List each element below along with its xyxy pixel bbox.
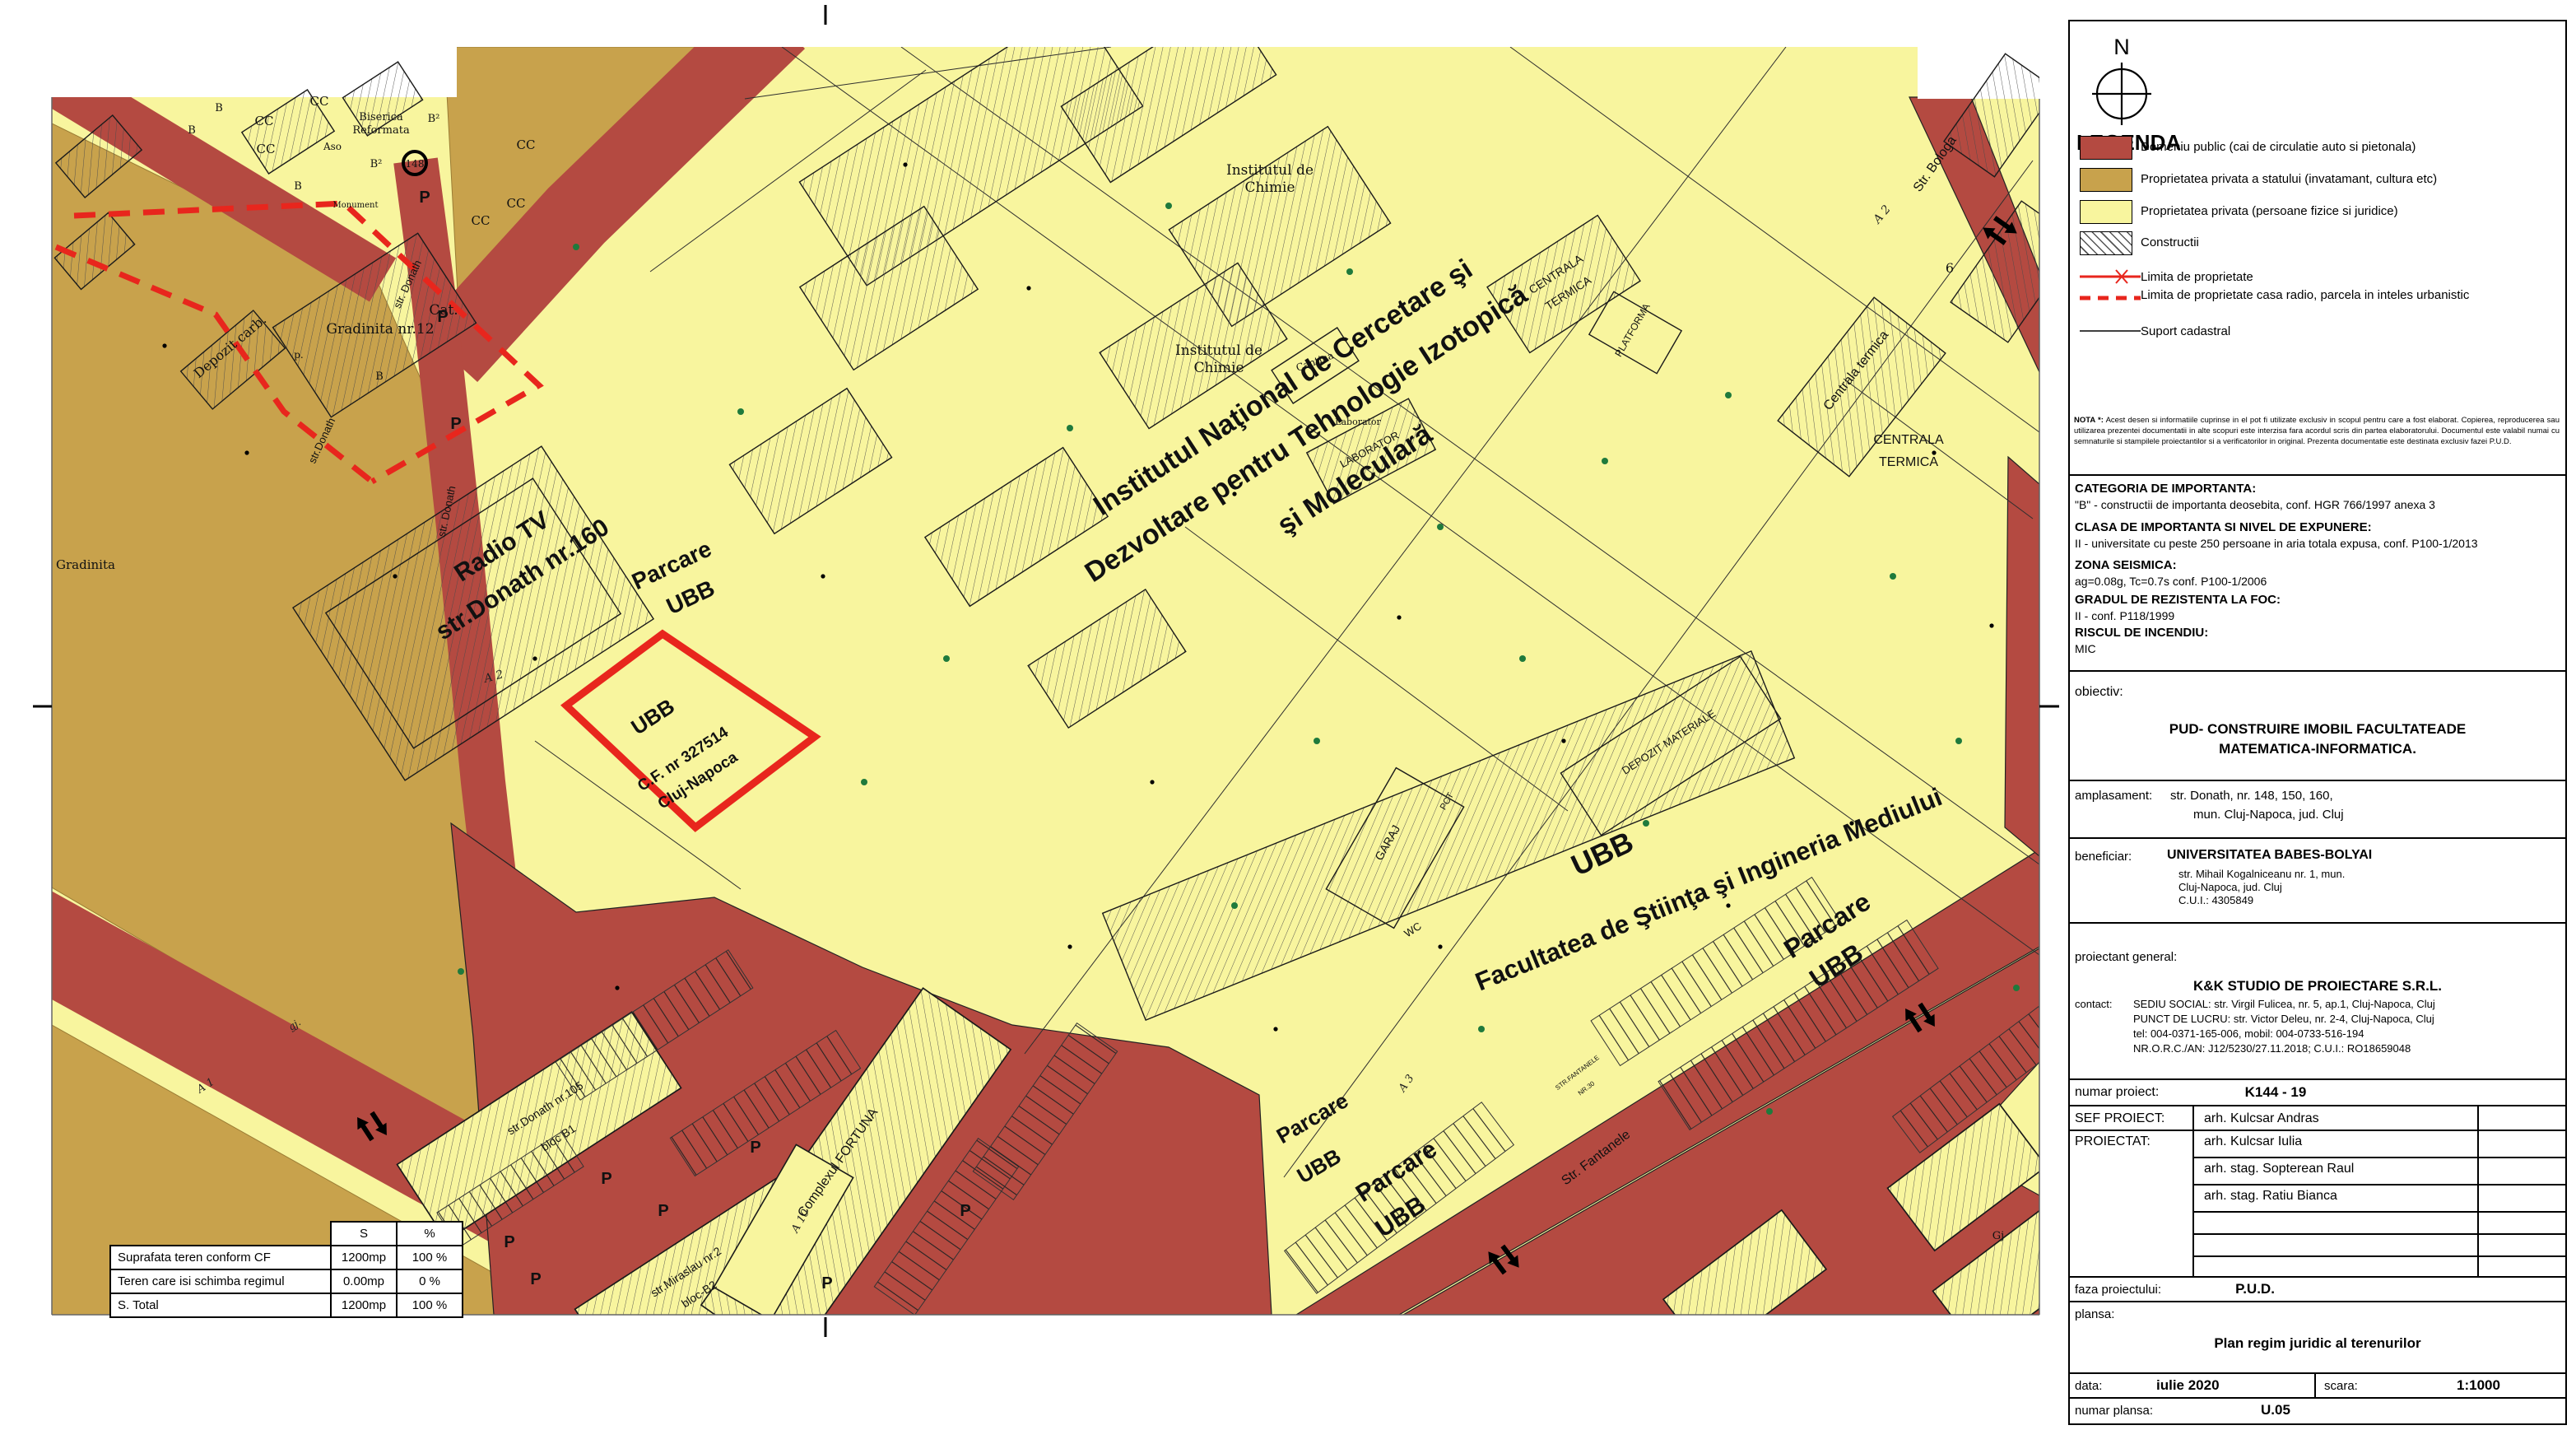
survey-dot xyxy=(1989,623,1993,627)
legend-swatch-constructii xyxy=(2080,231,2132,255)
tree-dot xyxy=(1165,203,1172,209)
info-heading: RISCUL DE INCENDIU: xyxy=(2075,626,2208,640)
tree-dot xyxy=(1766,1108,1773,1115)
map-label: Monument xyxy=(333,201,379,210)
legend-item: Proprietatea privata (persoane fizice si… xyxy=(2141,204,2398,218)
data-value: iulie 2020 xyxy=(2156,1377,2220,1394)
tree-dot xyxy=(573,244,579,250)
tree-dot xyxy=(1955,738,1962,744)
parking-marker: P xyxy=(530,1270,541,1288)
survey-dot xyxy=(1561,738,1565,743)
contact-label: contact: xyxy=(2075,998,2113,1010)
map-label: CC xyxy=(517,137,536,152)
survey-dot xyxy=(1026,286,1030,290)
table-row: S. Total 1200mp 100 % xyxy=(110,1293,463,1317)
info-heading: GRADUL DE REZISTENTA LA FOC: xyxy=(2075,593,2281,607)
beneficiar-name: UNIVERSITATEA BABES-BOLYAI xyxy=(2167,848,2372,863)
map-label: Chimie xyxy=(1193,360,1244,376)
info-body: "B" - constructii de importanta deosebit… xyxy=(2075,498,2435,511)
beneficiar-addr: Cluj-Napoca, jud. Cluj xyxy=(2178,881,2282,893)
info-body: ag=0.08g, Tc=0.7s conf. P100-1/2006 xyxy=(2075,575,2267,588)
proiectant-company: K&K STUDIO DE PROIECTARE S.R.L. xyxy=(2070,978,2565,994)
tree-dot xyxy=(458,968,464,975)
table-row: Suprafata teren conform CF 1200mp 100 % xyxy=(110,1246,463,1269)
survey-dot xyxy=(1150,780,1154,784)
numar-plansa-value: U.05 xyxy=(2193,1402,2358,1418)
parking-marker: P xyxy=(658,1202,668,1220)
parking-marker: P xyxy=(960,1202,970,1220)
faza-value: P.U.D. xyxy=(2152,1281,2358,1297)
beneficiar-cui: C.U.I.: 4305849 xyxy=(2178,894,2253,906)
parking-marker: P xyxy=(821,1274,832,1293)
scara-label: scara: xyxy=(2324,1379,2358,1393)
contact-line: SEDIU SOCIAL: str. Virgil Fulicea, nr. 5… xyxy=(2133,998,2435,1010)
survey-dot xyxy=(1438,944,1442,948)
table-row: Teren care isi schimba regimul 0.00mp 0 … xyxy=(110,1269,463,1293)
map-label: 6 xyxy=(1946,260,1954,276)
contact-line: NR.O.R.C./AN: J12/5230/27.11.2018; C.U.I… xyxy=(2133,1042,2411,1055)
obiectiv-title: PUD- CONSTRUIRE IMOBIL FACULTATEADE xyxy=(2070,721,2565,738)
tree-dot xyxy=(1067,425,1073,431)
legend-swatch-state xyxy=(2080,168,2132,192)
numar-plansa-label: numar plansa: xyxy=(2075,1404,2153,1418)
map-label: Chimie xyxy=(1244,179,1295,196)
map-label: Institutul de xyxy=(1226,162,1314,179)
survey-dot xyxy=(244,450,249,454)
map-label: Gj xyxy=(1992,1230,2004,1242)
amplasament-line1: str. Donath, nr. 148, 150, 160, xyxy=(2170,789,2333,803)
tree-dot xyxy=(737,408,744,415)
scara-value: 1:1000 xyxy=(2457,1377,2500,1394)
map-label: B xyxy=(188,124,196,137)
row-label: S. Total xyxy=(110,1293,331,1317)
proiectant-label: proiectant general: xyxy=(2075,950,2177,964)
proiectat-label: PROIECTAT: xyxy=(2075,1134,2151,1149)
map-label: CENTRALA xyxy=(1873,433,1944,447)
map-label: B² xyxy=(428,113,440,125)
row-s: 0.00mp xyxy=(331,1269,397,1293)
beneficiar-label: beneficiar: xyxy=(2075,850,2132,864)
parking-marker: P xyxy=(437,308,448,326)
proiectat-name: arh. Kulcsar Iulia xyxy=(2204,1134,2302,1149)
parking-marker: P xyxy=(601,1170,611,1188)
map-label: CC xyxy=(472,213,491,228)
info-body: II - universitate cu peste 250 persoane … xyxy=(2075,537,2478,550)
area-table-header-pct: % xyxy=(397,1222,463,1246)
map-label: 148 xyxy=(406,158,425,170)
parking-marker: P xyxy=(750,1139,760,1157)
nota-text: Acest desen si informatiile cuprinse in … xyxy=(2074,416,2560,446)
map-label: Laborator xyxy=(1335,417,1381,427)
map-label: TERMICA xyxy=(1879,455,1938,469)
legend-swatch-public xyxy=(2080,136,2132,160)
map-label: B xyxy=(375,370,384,383)
tree-dot xyxy=(1231,902,1238,909)
survey-dot xyxy=(1726,903,1730,907)
legend-item: Limita de proprietate xyxy=(2141,270,2253,284)
tree-dot xyxy=(943,655,950,662)
tree-dot xyxy=(861,779,867,785)
legend-item: Domeniu public (cai de circulatie auto s… xyxy=(2141,140,2416,154)
legend-item: Suport cadastral xyxy=(2141,324,2230,338)
map-label: p. xyxy=(294,349,304,361)
map-label: B xyxy=(215,102,223,114)
nota-label: NOTA *: xyxy=(2074,416,2104,425)
map-label: B² xyxy=(370,158,383,170)
nota-paragraph: NOTA *: Acest desen si informatiile cupr… xyxy=(2074,415,2560,447)
contact-line: PUNCT DE LUCRU: str. Victor Deleu, nr. 2… xyxy=(2133,1013,2434,1025)
legend-line-solid xyxy=(2080,268,2141,285)
tree-dot xyxy=(1890,573,1896,580)
survey-dot xyxy=(1273,1027,1277,1031)
info-body: MIC xyxy=(2075,642,2096,655)
numar-proiect-value: K144 - 19 xyxy=(2152,1084,2399,1101)
beneficiar-addr: str. Mihail Kogalniceanu nr. 1, mun. xyxy=(2178,868,2345,880)
legend-item: Proprietatea privata a statului (invatam… xyxy=(2141,172,2437,186)
map-label: Aso xyxy=(323,141,342,152)
map-label: CC xyxy=(507,196,526,211)
row-pct: 100 % xyxy=(397,1293,463,1317)
parking-marker: P xyxy=(419,189,430,207)
area-table: S % Suprafata teren conform CF 1200mp 10… xyxy=(109,1221,463,1318)
map-label: CC xyxy=(255,114,274,128)
proiectat-name: arh. stag. Sopterean Raul xyxy=(2204,1162,2354,1176)
tree-dot xyxy=(1478,1026,1485,1032)
title-block-panel: N LEGENDA Domeniu public (cai de circula… xyxy=(2068,20,2567,1425)
legend-swatch-private xyxy=(2080,200,2132,224)
north-label: N xyxy=(2113,35,2130,59)
survey-dot xyxy=(532,656,537,660)
map-label: CC xyxy=(310,94,329,109)
tree-dot xyxy=(2013,985,2020,991)
legend-line-cadastral xyxy=(2080,323,2141,339)
legend-item: Constructii xyxy=(2141,235,2199,249)
map-label: Gradinita xyxy=(56,557,115,572)
sef-proiect-name: arh. Kulcsar Andras xyxy=(2204,1111,2319,1126)
survey-dot xyxy=(162,343,166,347)
plan-sheet: { "colors":{"public_road":"#b44a41","sta… xyxy=(0,0,2576,1444)
tree-dot xyxy=(1643,820,1649,827)
obiectiv-label: obiectiv: xyxy=(2075,685,2123,700)
row-label: Teren care isi schimba regimul xyxy=(110,1269,331,1293)
info-heading: CATEGORIA DE IMPORTANTA: xyxy=(2075,482,2256,496)
info-heading: CLASA DE IMPORTANTA SI NIVEL DE EXPUNERE… xyxy=(2075,520,2372,534)
map-label: B xyxy=(294,180,302,193)
contact-line: tel: 004-0371-165-006, mobil: 004-0733-5… xyxy=(2133,1027,2364,1040)
amplasament-label: amplasament: xyxy=(2075,789,2152,803)
row-label: Suprafata teren conform CF xyxy=(110,1246,331,1269)
area-table-header-s: S xyxy=(331,1222,397,1246)
tree-dot xyxy=(1725,392,1732,398)
data-label: data: xyxy=(2075,1379,2102,1393)
info-heading: ZONA SEISMICA: xyxy=(2075,558,2177,572)
survey-dot xyxy=(1932,450,1936,454)
obiectiv-title2: MATEMATICA-INFORMATICA. xyxy=(2070,741,2565,757)
plansa-label: plansa: xyxy=(2075,1307,2114,1321)
map-label: CC xyxy=(257,142,276,156)
row-pct: 100 % xyxy=(397,1246,463,1269)
survey-dot xyxy=(903,162,907,166)
faza-label: faza proiectului: xyxy=(2075,1283,2161,1297)
map-label: Reformata xyxy=(352,124,410,137)
map-label: Biserica xyxy=(359,111,403,123)
parking-marker: P xyxy=(504,1233,514,1251)
survey-dot xyxy=(821,574,825,578)
amplasament-line2: mun. Cluj-Napoca, jud. Cluj xyxy=(2193,808,2344,822)
map-label: Gradinita nr.12 xyxy=(326,321,434,338)
tree-dot xyxy=(1519,655,1526,662)
legend-item: Limita de proprietate casa radio, parcel… xyxy=(2141,288,2536,303)
tree-dot xyxy=(1602,458,1608,464)
tree-dot xyxy=(1437,524,1444,530)
tree-dot xyxy=(1314,738,1320,744)
row-s: 1200mp xyxy=(331,1293,397,1317)
survey-dot xyxy=(1067,944,1072,948)
legend-line-dashed xyxy=(2080,290,2141,306)
numar-proiect-label: numar proiect: xyxy=(2075,1085,2159,1100)
row-pct: 0 % xyxy=(397,1269,463,1293)
survey-dot xyxy=(1397,615,1401,619)
north-compass: N xyxy=(2081,26,2180,137)
sef-proiect-label: SEF PROIECT: xyxy=(2075,1111,2164,1126)
map-label: Institutul de xyxy=(1175,342,1262,359)
parking-marker: P xyxy=(450,415,461,433)
proiectat-name: arh. stag. Ratiu Bianca xyxy=(2204,1189,2337,1204)
info-body: II - conf. P118/1999 xyxy=(2075,609,2174,622)
survey-dot xyxy=(393,574,397,578)
survey-dot xyxy=(615,985,619,990)
plansa-title: Plan regim juridic al terenurilor xyxy=(2070,1335,2565,1352)
tree-dot xyxy=(1346,268,1353,275)
row-s: 1200mp xyxy=(331,1246,397,1269)
